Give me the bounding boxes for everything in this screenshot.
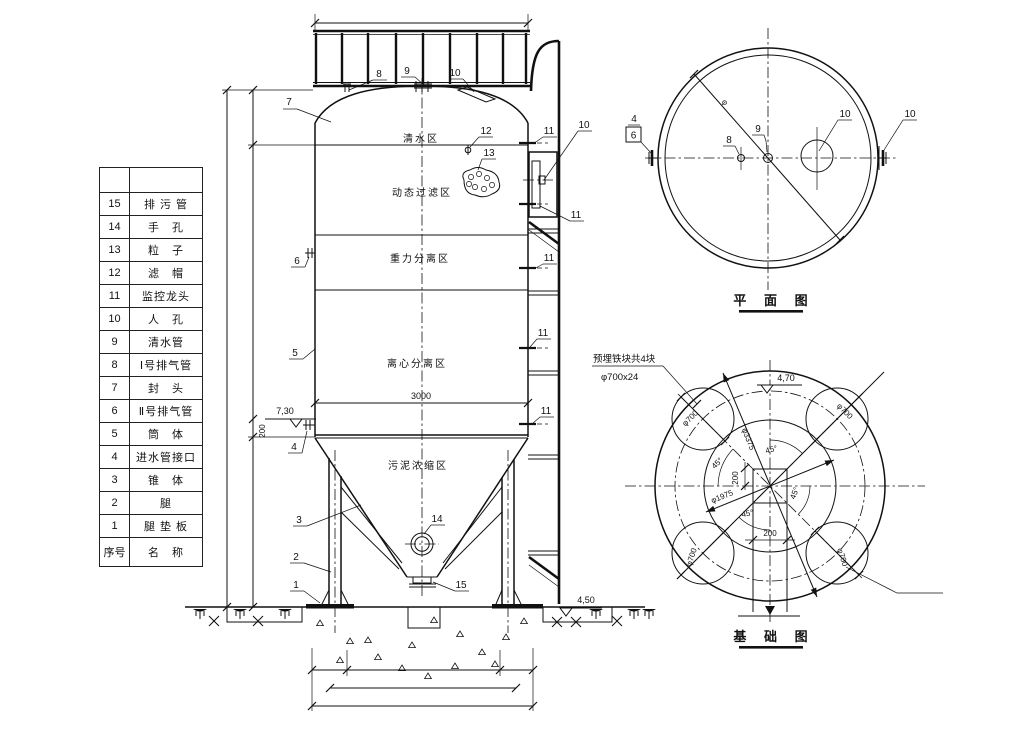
table-header-row: 序号名 称 <box>100 538 203 567</box>
plan-callout-10-manhole: 10 <box>819 109 852 151</box>
callout-7: 7 <box>283 97 331 122</box>
svg-text:4: 4 <box>631 114 637 125</box>
dim-phi700-se: φ700 <box>811 527 863 579</box>
ladder-braces <box>528 229 559 555</box>
foundation-dimensions <box>308 648 537 711</box>
svg-text:8: 8 <box>376 69 382 80</box>
top-dimension-line <box>311 14 532 30</box>
callout-11-b: 11 <box>540 206 584 221</box>
svg-text:平 面 图: 平 面 图 <box>733 293 814 308</box>
svg-text:10: 10 <box>449 68 461 79</box>
monitoring-taps <box>519 143 548 424</box>
svg-text:4,70: 4,70 <box>777 373 795 383</box>
plan-diagonal-dim: φ <box>690 70 844 244</box>
foundation-title: 基 础 图 <box>732 629 814 649</box>
diameter-dimension: 3000 <box>311 391 532 407</box>
parts-table: 15排 污 管 14手 孔 13粒 子 12滤 帽 11监控龙头 10人 孔 9… <box>99 167 203 567</box>
svg-text:11: 11 <box>571 210 582 221</box>
svg-text:6: 6 <box>631 131 637 142</box>
svg-text:200: 200 <box>731 471 740 485</box>
svg-text:预埋铁块共4块: 预埋铁块共4块 <box>593 353 656 365</box>
table-row: 2腿 <box>100 492 203 515</box>
ground-foundation <box>185 607 656 711</box>
callout-15: 15 <box>433 580 469 591</box>
svg-text:45°: 45° <box>764 444 778 456</box>
table-row: 14手 孔 <box>100 216 203 239</box>
svg-text:14: 14 <box>431 514 443 525</box>
table-row: 3锥 体 <box>100 469 203 492</box>
svg-text:φ700: φ700 <box>835 547 849 568</box>
table-row: 8Ⅰ号排气管 <box>100 354 203 377</box>
svg-text:200: 200 <box>763 529 777 538</box>
svg-text:45°: 45° <box>710 456 725 471</box>
level-730-value: 7,30 <box>276 406 294 416</box>
particles-icon <box>463 168 500 197</box>
table-row: 10人 孔 <box>100 308 203 331</box>
level-450-value: 4,50 <box>577 595 595 605</box>
zone-label-centrifugal-separation: 离心分离区 <box>387 357 447 370</box>
svg-text:11: 11 <box>544 126 555 137</box>
callout-11-a: 11 <box>533 126 557 144</box>
table-empty-row <box>100 168 203 193</box>
zone-label-gravity-separation: 重力分离区 <box>390 252 450 265</box>
svg-text:φ700: φ700 <box>684 547 698 568</box>
plan-view: φ 8 9 10 10 4 6 平 面 图 <box>626 28 917 313</box>
plan-callout-10-nozzle: 10 <box>884 109 917 150</box>
svg-text:2: 2 <box>293 552 299 563</box>
svg-text:3: 3 <box>296 515 302 526</box>
svg-text:4: 4 <box>291 442 297 453</box>
svg-text:10: 10 <box>578 120 590 131</box>
svg-text:φ1975: φ1975 <box>710 488 735 505</box>
callout-13: 13 <box>478 148 496 170</box>
svg-text:15: 15 <box>455 580 467 591</box>
callout-3: 3 <box>293 505 361 526</box>
table-row: 5筒 体 <box>100 423 203 446</box>
drain-pipe <box>409 577 436 587</box>
callout-12: 12 <box>470 126 493 147</box>
left-dimension-lines: 200 <box>222 86 315 611</box>
svg-text:5: 5 <box>292 348 298 359</box>
platform-railing <box>313 31 530 86</box>
se-leader <box>846 567 943 593</box>
legs <box>306 450 543 633</box>
table-row: 15排 污 管 <box>100 193 203 216</box>
foundation-view: φ3375 φ1975 φ700 φ700 φ700 φ700 45° 45° … <box>592 353 943 649</box>
soil-hatch <box>193 609 656 627</box>
vent-pipe-2-icon <box>305 248 315 258</box>
zone-labels: 清水区 动态过滤区 重力分离区 离心分离区 污泥浓缩区 <box>387 132 452 472</box>
level-730: 7,30 <box>265 406 316 427</box>
svg-text:9: 9 <box>404 66 410 77</box>
svg-text:11: 11 <box>541 406 552 417</box>
left-fittings <box>303 248 315 430</box>
dim-phi700-ne: φ700 <box>811 393 863 445</box>
plan-title: 平 面 图 <box>733 293 814 313</box>
callout-14: 14 <box>424 514 445 534</box>
svg-text:6: 6 <box>294 256 300 267</box>
callout-11-d: 11 <box>530 328 551 347</box>
plan-callout-6: 6 <box>626 127 651 153</box>
svg-text:7: 7 <box>286 97 292 108</box>
dim-phi700-sw: φ700 <box>677 527 729 579</box>
table-row: 11监控龙头 <box>100 285 203 308</box>
dim-phi700-nw: φ700 <box>677 393 729 445</box>
callout-1: 1 <box>290 580 320 603</box>
zone-label-dynamic-filter: 动态过滤区 <box>392 186 452 199</box>
dim-200-left: 200 <box>258 424 267 438</box>
embed-plate-note: 预埋铁块共4块 φ700x24 <box>592 353 701 408</box>
hatched-brace-bottom <box>529 557 559 587</box>
angle-dims: 45° 45° 45° 45° <box>710 440 810 530</box>
table-row: 9清水管 <box>100 331 203 354</box>
table-row: 1腿 垫 板 <box>100 515 203 538</box>
callout-5: 5 <box>289 348 315 359</box>
table-row: 7封 头 <box>100 377 203 400</box>
dim-3000: 3000 <box>411 391 431 401</box>
elevation-view: 清水区 动态过滤区 重力分离区 离心分离区 污泥浓缩区 3000 <box>185 14 656 711</box>
svg-text:45°: 45° <box>788 486 801 500</box>
plan-left-nozzle <box>648 150 658 166</box>
svg-text:φ700x24: φ700x24 <box>601 372 638 383</box>
filter-cap-icon <box>465 145 471 155</box>
svg-text:8: 8 <box>726 135 732 146</box>
plan-vent1 <box>738 147 745 170</box>
svg-text:11: 11 <box>544 253 555 264</box>
callout-2: 2 <box>290 552 331 572</box>
table-row: 12滤 帽 <box>100 262 203 285</box>
svg-text:基 础 图: 基 础 图 <box>732 629 814 644</box>
plan-callout-8: 8 <box>723 135 739 154</box>
svg-text:11: 11 <box>538 328 549 339</box>
table-row: 4进水管接口 <box>100 446 203 469</box>
table-row: 13粒 子 <box>100 239 203 262</box>
callout-11-c: 11 <box>534 253 557 269</box>
callout-6: 6 <box>291 256 309 267</box>
svg-text:13: 13 <box>483 148 495 159</box>
callout-4: 4 <box>288 431 307 453</box>
svg-text:45°: 45° <box>741 508 755 519</box>
level-470: 4,70 <box>757 373 802 393</box>
hatched-brace-top <box>529 222 559 252</box>
svg-text:φ3375: φ3375 <box>740 427 757 452</box>
svg-text:10: 10 <box>839 109 851 120</box>
zone-label-clean-water: 清水区 <box>403 132 439 145</box>
svg-text:10: 10 <box>904 109 916 120</box>
svg-text:12: 12 <box>480 126 492 137</box>
svg-text:9: 9 <box>755 124 761 135</box>
callout-11-e: 11 <box>532 406 554 424</box>
plan-right-nozzle <box>878 146 887 170</box>
plan-callout-4: 4 <box>628 114 640 125</box>
inlet-connection-icon <box>303 420 315 430</box>
cone-braces <box>322 487 521 604</box>
table-row: 6Ⅱ号排气管 <box>100 400 203 423</box>
engineering-drawing: 清水区 动态过滤区 重力分离区 离心分离区 污泥浓缩区 3000 <box>0 0 1023 736</box>
zone-label-sludge-thickening: 污泥浓缩区 <box>388 459 448 472</box>
svg-text:1: 1 <box>293 580 299 591</box>
